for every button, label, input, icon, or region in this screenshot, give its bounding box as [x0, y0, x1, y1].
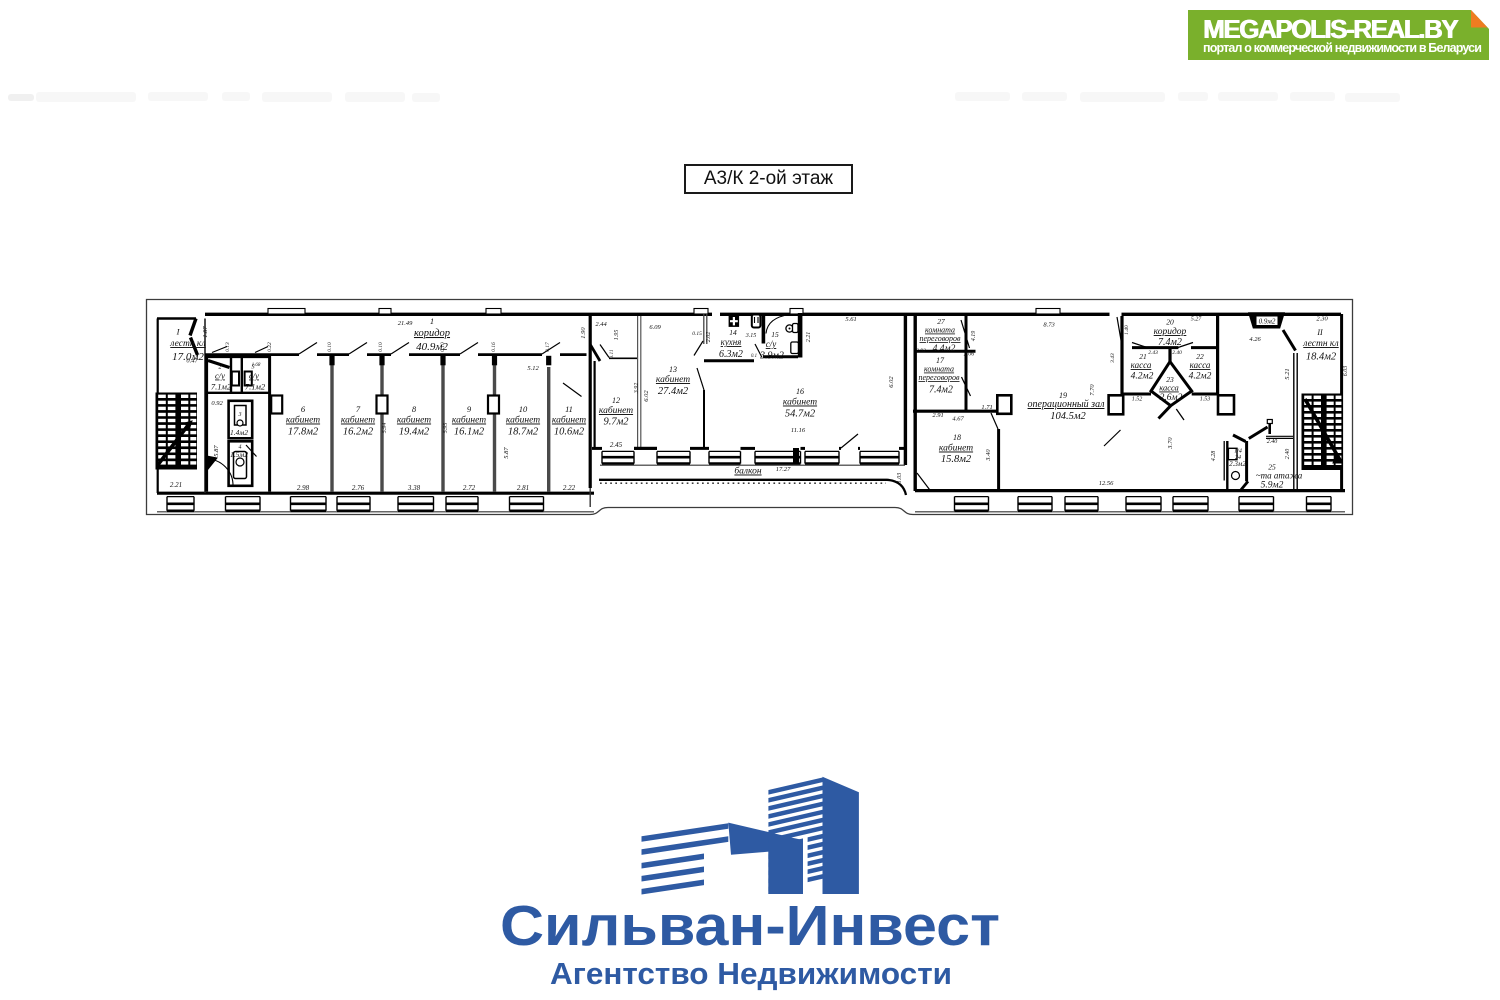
svg-text:1/4: 1/4 — [1234, 448, 1242, 455]
svg-text:5.12: 5.12 — [527, 365, 539, 372]
svg-text:0.10: 0.10 — [440, 342, 446, 352]
svg-text:4.28: 4.28 — [1210, 451, 1217, 462]
svg-text:4.26: 4.26 — [1249, 336, 1261, 343]
svg-text:5.61: 5.61 — [845, 316, 856, 323]
svg-text:I: I — [176, 327, 181, 337]
svg-text:2.43: 2.43 — [1148, 349, 1158, 356]
svg-text:Агентство Недвижимости: Агентство Недвижимости — [550, 956, 952, 991]
svg-text:6.09: 6.09 — [649, 324, 661, 331]
svg-text:5.87: 5.87 — [503, 447, 510, 459]
svg-text:переговоров: переговоров — [918, 373, 960, 382]
svg-text:6.02: 6.02 — [888, 376, 895, 388]
svg-text:0.9м2: 0.9м2 — [1259, 318, 1276, 326]
svg-text:2.40: 2.40 — [1267, 438, 1278, 445]
svg-text:0.17: 0.17 — [545, 342, 551, 352]
svg-text:2.92: 2.92 — [916, 348, 926, 354]
svg-text:2.21: 2.21 — [170, 481, 182, 489]
svg-text:кабинет: кабинет — [286, 415, 320, 426]
svg-text:кабинет: кабинет — [599, 405, 633, 416]
svg-text:6.02: 6.02 — [643, 390, 650, 402]
svg-text:1: 1 — [430, 316, 434, 326]
svg-text:кабинет: кабинет — [939, 443, 973, 454]
svg-text:18.4м2: 18.4м2 — [1306, 352, 1337, 363]
svg-text:2.76: 2.76 — [352, 484, 365, 492]
svg-text:кабинет: кабинет — [341, 415, 375, 426]
svg-text:3.9м2: 3.9м2 — [759, 351, 784, 362]
svg-text:II: II — [1316, 328, 1323, 337]
svg-text:кабинет: кабинет — [783, 397, 817, 408]
svg-text:18.7м2: 18.7м2 — [508, 427, 539, 438]
svg-text:2.02: 2.02 — [706, 332, 712, 343]
svg-text:0.92: 0.92 — [211, 400, 223, 407]
svg-text:7.4м2: 7.4м2 — [929, 385, 953, 396]
svg-text:Сильван-Инвест: Сильван-Инвест — [500, 894, 1000, 958]
svg-text:касса: касса — [1190, 360, 1211, 370]
svg-text:0.10: 0.10 — [378, 342, 384, 352]
svg-text:переговоров: переговоров — [919, 334, 961, 343]
svg-text:балкон: балкон — [734, 466, 762, 477]
svg-text:кабинет: кабинет — [656, 374, 690, 385]
svg-text:с/у: с/у — [215, 371, 225, 381]
svg-text:54.7м2: 54.7м2 — [785, 409, 816, 420]
svg-text:3.70: 3.70 — [1167, 437, 1174, 450]
svg-text:8.73: 8.73 — [1043, 322, 1055, 329]
svg-text:с/у: с/у — [249, 371, 259, 381]
svg-text:11.16: 11.16 — [791, 427, 806, 434]
svg-text:с/у: с/у — [766, 339, 777, 349]
svg-text:0.16: 0.16 — [491, 342, 497, 352]
svg-text:кабинет: кабинет — [397, 415, 431, 426]
svg-text:5.9м2: 5.9м2 — [1261, 481, 1284, 491]
svg-text:лестн кл: лестн кл — [1302, 339, 1338, 349]
svg-text:лестн кл: лестн кл — [169, 339, 205, 349]
svg-text:1.87: 1.87 — [202, 326, 209, 338]
svg-text:5.87: 5.87 — [213, 445, 220, 457]
svg-text:4.19: 4.19 — [970, 331, 977, 342]
svg-text:6.3м2: 6.3м2 — [719, 349, 743, 360]
svg-text:2.06: 2.06 — [964, 352, 975, 358]
svg-text:6: 6 — [301, 404, 306, 414]
svg-text:7.1м2: 7.1м2 — [211, 382, 232, 392]
svg-text:2.21: 2.21 — [806, 332, 812, 343]
svg-text:2.3м2: 2.3м2 — [1229, 460, 1246, 468]
svg-text:27.4м2: 27.4м2 — [658, 386, 689, 397]
svg-text:1.40: 1.40 — [1123, 325, 1130, 335]
svg-text:касса: касса — [1131, 360, 1152, 370]
svg-text:20: 20 — [1166, 318, 1174, 327]
svg-text:17.8м2: 17.8м2 — [288, 427, 319, 438]
svg-text:3.15: 3.15 — [745, 333, 757, 339]
svg-text:4.4м2: 4.4м2 — [933, 344, 956, 354]
svg-text:9: 9 — [467, 404, 472, 414]
svg-text:5.94: 5.94 — [381, 423, 388, 434]
svg-text:3.38: 3.38 — [407, 484, 421, 492]
svg-text:0.1: 0.1 — [751, 354, 757, 359]
svg-text:2.6м2: 2.6м2 — [1160, 393, 1183, 403]
svg-text:1.53: 1.53 — [1200, 397, 1211, 403]
svg-text:2.40: 2.40 — [1284, 449, 1291, 460]
svg-text:1.90: 1.90 — [580, 327, 587, 339]
svg-text:коридор: коридор — [414, 328, 450, 339]
svg-text:~та атажа: ~та атажа — [1256, 471, 1303, 481]
svg-text:3.43: 3.43 — [1109, 353, 1116, 364]
svg-text:2.40: 2.40 — [1172, 349, 1182, 356]
svg-text:7.1м2: 7.1м2 — [245, 382, 266, 392]
svg-text:1.68: 1.68 — [252, 363, 261, 368]
svg-text:19.4м2: 19.4м2 — [399, 427, 430, 438]
svg-text:12.56: 12.56 — [1099, 480, 1114, 487]
svg-text:13: 13 — [669, 365, 677, 374]
svg-text:1.95: 1.95 — [614, 330, 620, 341]
svg-text:3.40: 3.40 — [985, 449, 992, 462]
svg-text:11: 11 — [565, 404, 573, 414]
svg-text:9.7м2: 9.7м2 — [603, 417, 629, 428]
svg-text:2.22: 2.22 — [563, 484, 576, 492]
svg-text:5.27: 5.27 — [1191, 317, 1203, 323]
svg-text:касса: касса — [1159, 383, 1179, 393]
svg-text:16.1м2: 16.1м2 — [454, 427, 485, 438]
svg-text:5.21: 5.21 — [1284, 368, 1291, 379]
svg-text:2.91: 2.91 — [932, 412, 943, 419]
svg-text:1.5м2: 1.5м2 — [230, 450, 248, 459]
svg-text:кабинет: кабинет — [506, 415, 540, 426]
svg-text:18: 18 — [953, 433, 961, 442]
svg-text:4.2м2: 4.2м2 — [1189, 372, 1212, 382]
svg-text:1.03: 1.03 — [897, 473, 903, 484]
svg-text:1.4м2: 1.4м2 — [230, 428, 248, 437]
svg-text:4.2м2: 4.2м2 — [1131, 372, 1154, 382]
svg-text:7: 7 — [356, 404, 361, 414]
svg-text:15: 15 — [771, 330, 779, 339]
svg-text:кабинет: кабинет — [452, 415, 486, 426]
svg-text:17.27: 17.27 — [776, 466, 791, 473]
svg-text:2.45: 2.45 — [610, 441, 623, 449]
svg-text:2.44: 2.44 — [595, 321, 607, 328]
svg-text:16: 16 — [796, 387, 804, 396]
svg-text:15.8м2: 15.8м2 — [941, 454, 972, 465]
svg-text:0.11: 0.11 — [609, 349, 615, 358]
svg-text:21.49: 21.49 — [398, 320, 413, 327]
svg-text:7.4м2: 7.4м2 — [1158, 337, 1182, 348]
svg-text:кабинет: кабинет — [552, 415, 586, 426]
svg-text:10: 10 — [519, 404, 528, 414]
svg-text:кухня: кухня — [721, 337, 742, 347]
svg-text:16.2м2: 16.2м2 — [343, 427, 374, 438]
svg-text:операционный зал: операционный зал — [1028, 399, 1106, 410]
svg-text:2.98: 2.98 — [297, 484, 310, 492]
svg-text:7.70: 7.70 — [1089, 384, 1096, 396]
svg-text:0.47: 0.47 — [186, 358, 198, 365]
svg-text:3.92: 3.92 — [634, 383, 640, 395]
svg-text:104.5м2: 104.5м2 — [1050, 411, 1086, 422]
svg-text:0.10: 0.10 — [327, 342, 333, 352]
svg-text:0.15: 0.15 — [692, 331, 702, 337]
svg-text:5.95: 5.95 — [443, 423, 449, 434]
svg-text:3: 3 — [238, 412, 242, 418]
svg-text:10.6м2: 10.6м2 — [554, 427, 585, 438]
svg-text:6.03: 6.03 — [1343, 366, 1349, 377]
svg-text:8: 8 — [412, 404, 417, 414]
svg-text:коридор: коридор — [1154, 326, 1187, 337]
svg-text:12: 12 — [612, 396, 620, 405]
svg-text:2.81: 2.81 — [517, 484, 529, 492]
svg-text:14: 14 — [729, 328, 737, 337]
svg-text:4.67: 4.67 — [952, 416, 964, 423]
svg-text:2.72: 2.72 — [463, 484, 476, 492]
svg-text:1.52: 1.52 — [1132, 397, 1143, 403]
svg-text:2.30: 2.30 — [1316, 316, 1328, 323]
